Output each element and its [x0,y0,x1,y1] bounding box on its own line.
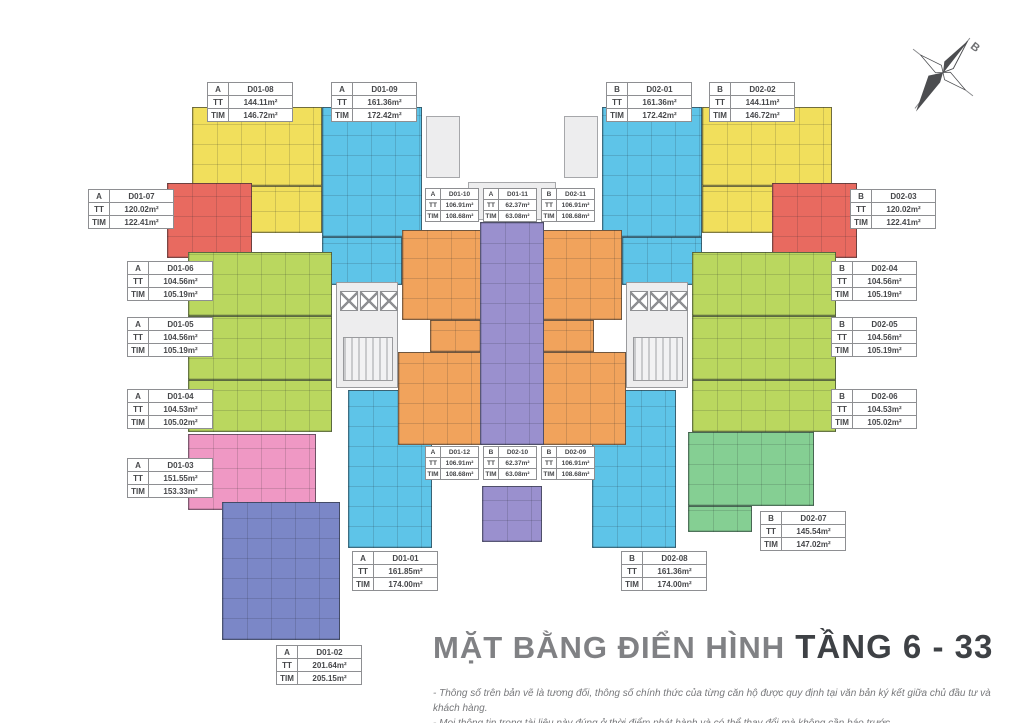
unit-block-d02-01-lower [622,237,702,285]
unit-label-d01-05: AD01-05 TT104.56m² TIM105.19m² [127,317,213,357]
unit-block-d02-09 [541,352,626,445]
unit-label-d01-04: AD01-04 TT104.53m² TIM105.02m² [127,389,213,429]
unit-label-d02-05: BD02-05 TT104.56m² TIM105.19m² [831,317,917,357]
unit-block-d01-10-mid [430,320,483,352]
unit-label-d01-11: AD01-11 TT62.37m² TIM63.08m² [483,188,537,222]
unit-label-d02-11: BD02-11 TT106.91m² TIM108.68m² [541,188,595,222]
unit-label-d01-07: AD01-07 TT120.02m² TIM122.41m² [88,189,174,229]
unit-label-d02-10: BD02-10 TT62.37m² TIM63.08m² [483,446,537,480]
unit-block-d02-03 [772,183,857,258]
elevator-core-right [626,282,688,388]
unit-block-d02-07 [688,432,814,506]
plan-title-floors: TẦNG 6 - 33 [785,628,993,665]
unit-block-d02-06 [692,380,836,432]
elevator-icon [670,291,688,311]
unit-block-d01-11-d02-10 [480,222,544,445]
stair-icon [633,337,683,381]
elevator-icon [650,291,668,311]
unit-label-d01-12: AD01-12 TT106.91m² TIM108.68m² [425,446,479,480]
plan-title-regular: MẶT BẰNG ĐIỂN HÌNH [433,630,785,665]
unit-block-d01-09 [322,107,422,237]
unit-block-d02-01 [602,107,702,237]
disclaimer-line-1: - Thông số trên bản vẽ là tương đối, thô… [433,686,1008,716]
unit-block-d01-10 [402,230,483,320]
compass-icon: B [893,25,993,120]
service-area-top-right [564,116,598,178]
unit-label-d01-01: AD01-01 TT161.85m² TIM174.00m² [352,551,438,591]
plan-title: MẶT BẰNG ĐIỂN HÌNH TẦNG 6 - 33 [433,628,993,666]
disclaimer-line-2: - Mọi thông tin trong tài liệu này đúng … [433,716,1008,723]
unit-block-d01-07 [167,183,252,258]
compass-north-label: B [968,40,982,55]
elevator-icon [340,291,358,311]
unit-block-d01-12 [398,352,483,445]
unit-label-d01-08: AD01-08 TT144.11m² TIM146.72m² [207,82,293,122]
unit-label-d01-09: AD01-09 TT161.36m² TIM172.42m² [331,82,417,122]
unit-block-d02-11 [541,230,622,320]
floor-plan-page: AD01-08 TT144.11m² TIM146.72m² AD01-09 T… [0,0,1024,723]
unit-block-d02-11-mid [541,320,594,352]
unit-label-d01-06: AD01-06 TT104.56m² TIM105.19m² [127,261,213,301]
elevator-core-left [336,282,398,388]
unit-label-d02-08: BD02-08 TT161.36m² TIM174.00m² [621,551,707,591]
unit-block-d02-04 [692,252,836,316]
elevator-icon [380,291,398,311]
unit-label-d02-07: BD02-07 TT145.54m² TIM147.02m² [760,511,846,551]
unit-block-d02-07-step [688,506,752,532]
unit-block-d01-09-lower [322,237,402,285]
unit-block-d02-05 [692,316,836,380]
unit-block-d01-08-lower [250,186,322,233]
elevator-icon [630,291,648,311]
unit-label-d01-02: AD01-02 TT201.64m² TIM205.15m² [276,645,362,685]
unit-label-d01-10: AD01-10 TT106.91m² TIM108.68m² [425,188,479,222]
unit-label-d02-03: BD02-03 TT120.02m² TIM122.41m² [850,189,936,229]
unit-label-d02-06: BD02-06 TT104.53m² TIM105.02m² [831,389,917,429]
unit-block-purple-lower [482,486,542,542]
unit-label-d02-04: BD02-04 TT104.56m² TIM105.19m² [831,261,917,301]
disclaimer-notes: - Thông số trên bản vẽ là tương đối, thô… [433,686,1008,723]
unit-label-d02-01: BD02-01 TT161.36m² TIM172.42m² [606,82,692,122]
stair-icon [343,337,393,381]
unit-label-d02-02: BD02-02 TT144.11m² TIM146.72m² [709,82,795,122]
unit-block-d02-02-lower [702,186,774,233]
elevator-icon [360,291,378,311]
unit-label-d02-09: BD02-09 TT106.91m² TIM108.68m² [541,446,595,480]
unit-block-d01-02 [222,502,340,640]
unit-label-d01-03: AD01-03 TT151.55m² TIM153.33m² [127,458,213,498]
service-area-top-left [426,116,460,178]
